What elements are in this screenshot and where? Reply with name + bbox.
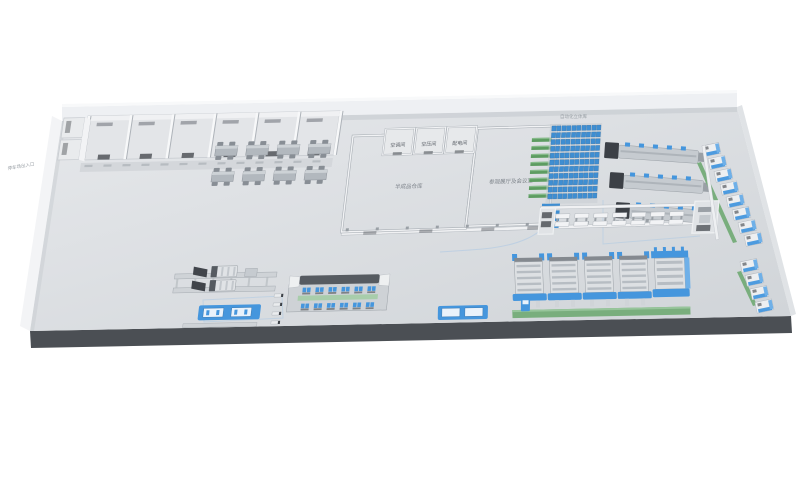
rack-cell — [564, 173, 569, 178]
big-machine — [616, 251, 652, 306]
equipment-unit — [541, 221, 552, 227]
column-dot — [646, 219, 649, 222]
column-dot — [436, 226, 439, 229]
rack-cell — [579, 173, 584, 178]
outside-left-label: 停车场出入口 — [7, 160, 35, 172]
machine-slat — [586, 263, 610, 266]
rack-cell — [566, 139, 571, 144]
bench-top — [650, 220, 664, 225]
rack-cell — [570, 160, 575, 165]
machine-leg — [641, 298, 645, 305]
hall-door — [363, 231, 376, 235]
desk-chair — [304, 180, 311, 184]
rack-cell — [588, 180, 593, 185]
rack-cell — [565, 153, 570, 158]
rack-cell — [561, 139, 566, 144]
machine-slat — [587, 269, 611, 272]
rack-cell — [561, 133, 566, 138]
rack-cell — [590, 146, 595, 151]
rack-cell — [550, 153, 555, 158]
rack-cell — [595, 152, 600, 157]
utility-room — [414, 127, 446, 154]
rack-cell — [584, 159, 589, 164]
utility-room-label-3: 配电间 — [452, 140, 468, 147]
rack-cell — [569, 173, 574, 178]
assembly-station — [340, 303, 344, 308]
station-mat — [520, 312, 531, 317]
assembly-station-base — [315, 292, 323, 294]
hook-body — [271, 321, 278, 324]
bench-top — [593, 221, 607, 226]
rack-cell — [591, 139, 596, 144]
rack-cell — [584, 173, 589, 178]
rack-cell — [571, 139, 576, 144]
rack-cell — [570, 146, 575, 151]
rack-cell — [594, 166, 599, 171]
rack-cell — [596, 139, 601, 144]
rack-cell — [564, 160, 569, 165]
rack-cell — [589, 166, 594, 171]
assembly-station — [328, 287, 332, 292]
rack-cell — [552, 194, 557, 199]
rack-cell — [581, 139, 586, 144]
assembly-station-base — [327, 308, 335, 310]
line-station-dot — [686, 176, 691, 180]
assembly-station-base — [354, 291, 362, 293]
desk-chair — [273, 181, 280, 185]
rack-cell — [584, 166, 589, 171]
corridor-tick — [236, 162, 244, 164]
rack-cell — [560, 160, 565, 165]
desk-chair — [291, 140, 298, 144]
rack-cell — [588, 186, 593, 191]
bench-top — [631, 220, 645, 225]
machine-slat — [517, 288, 541, 291]
rack-cell — [551, 133, 556, 138]
desk-chair — [260, 141, 267, 145]
corridor-tick — [255, 161, 263, 163]
rack-cell — [550, 160, 555, 165]
platform-tick — [244, 309, 248, 314]
bench-top — [669, 219, 683, 224]
rack-cell — [583, 186, 588, 191]
assembly-station — [305, 304, 309, 309]
line-station-dot — [667, 145, 672, 149]
rack-cell — [578, 193, 583, 198]
rack-cell — [564, 166, 569, 171]
machine-base — [583, 292, 617, 300]
hook-item — [271, 321, 280, 324]
hook-body — [274, 294, 281, 297]
rack-cell — [594, 173, 599, 178]
rack-cell — [574, 159, 579, 164]
corridor-tick — [160, 163, 168, 165]
desk-chair — [285, 180, 292, 184]
desk-chair — [211, 182, 218, 186]
rack-cell — [548, 194, 553, 199]
rack-cell — [568, 180, 573, 185]
rack-cell — [560, 153, 565, 158]
corridor-tick — [141, 164, 149, 166]
rack-cell — [558, 194, 563, 199]
rack-cell — [574, 173, 579, 178]
rack-cell — [587, 125, 592, 130]
room-sign — [180, 121, 197, 125]
machine-slat — [552, 288, 576, 291]
hook-item — [273, 303, 282, 306]
assembly-station — [359, 286, 363, 291]
column-dot — [526, 223, 529, 226]
rack-cell — [572, 193, 577, 198]
assembly-line — [286, 274, 390, 312]
rack-cell — [571, 132, 576, 137]
room-sign — [222, 120, 239, 124]
machine-frame — [651, 251, 688, 259]
rack-cell — [593, 179, 598, 184]
assembly-station — [370, 302, 374, 307]
desk-chair — [225, 168, 232, 172]
bench-top — [612, 221, 626, 226]
corner-room — [58, 140, 82, 160]
machine-leg — [606, 299, 610, 306]
hook-tip — [278, 321, 280, 324]
assembly-station — [353, 303, 357, 308]
desk-chair — [310, 140, 317, 144]
assembly-station — [346, 287, 350, 292]
line-head — [609, 172, 624, 189]
assembly-station — [366, 302, 370, 307]
machine-base — [653, 289, 690, 298]
rack-cell — [588, 193, 593, 198]
rack-cell — [567, 126, 572, 131]
machine-base — [548, 293, 582, 301]
room-door — [139, 154, 152, 159]
machine-leg — [625, 299, 629, 306]
column-dot — [376, 227, 379, 230]
assembly-station — [314, 303, 318, 308]
rack-cell — [566, 132, 571, 137]
utility-room-door — [393, 152, 402, 155]
rack-cell — [556, 133, 561, 138]
rack-cell — [583, 180, 588, 185]
big-machine — [581, 252, 617, 307]
platform-unit — [442, 308, 460, 317]
bench-top — [556, 214, 570, 219]
line-station-dot — [681, 146, 686, 150]
machine-leg — [571, 300, 575, 307]
desk-chair — [213, 168, 220, 172]
rack-cell — [589, 173, 594, 178]
assembly-station-base — [302, 293, 310, 295]
desk-chair — [229, 142, 236, 146]
room-sign — [138, 122, 155, 126]
room-door — [181, 153, 194, 158]
factory-3d-scene: 空调间空压间配电间半成品仓库参观展厅及会议室 停车场出入口 自动化立体库 — [0, 0, 800, 480]
desk-chair — [227, 156, 234, 160]
line-station-dot — [653, 144, 658, 148]
assembly-station — [331, 303, 335, 308]
rack-cell — [592, 125, 597, 130]
storage-area-label: 自动化立体库 — [560, 113, 587, 120]
line-head — [604, 142, 619, 159]
rack-cell — [575, 153, 580, 158]
bench-top — [555, 222, 569, 227]
room-sign — [306, 118, 323, 122]
machine-slat — [622, 274, 646, 277]
machine-slat — [622, 286, 646, 289]
rack-cell — [554, 167, 559, 172]
rack-cell — [568, 187, 573, 192]
desk-chair — [322, 140, 329, 144]
machine-slat — [587, 287, 611, 290]
rack-cell — [562, 194, 567, 199]
big-machine — [651, 247, 691, 298]
assembly-station — [344, 303, 348, 308]
hook-body — [273, 303, 280, 306]
rack-cell — [549, 174, 554, 179]
assembly-station-base — [328, 292, 336, 294]
rack-cell — [585, 146, 590, 151]
rack-cell — [581, 132, 586, 137]
column-dot — [346, 228, 349, 231]
machine-slat — [587, 281, 611, 284]
utility-room — [445, 126, 477, 153]
bench-top — [632, 212, 646, 217]
bench-top — [651, 212, 665, 217]
room-sign — [264, 119, 281, 123]
assembly-station — [357, 302, 361, 307]
assembly-station — [367, 286, 371, 291]
rack-cell — [553, 180, 558, 185]
machine-base — [618, 291, 652, 299]
desk-chair — [320, 154, 327, 158]
machine-slat — [552, 282, 576, 285]
assembly-station — [320, 287, 324, 292]
rack-cell — [563, 187, 568, 192]
rack-cell — [552, 126, 557, 131]
bench-top — [575, 213, 589, 218]
rack-cell — [576, 139, 581, 144]
assembly-station — [341, 287, 345, 292]
corridor-tick — [274, 161, 282, 163]
rack-cell — [592, 193, 597, 198]
desk-chair — [316, 180, 323, 184]
line-station-dot — [672, 175, 677, 179]
utility-room-door — [455, 150, 464, 153]
conveyor-box — [245, 268, 258, 276]
rack-cell — [575, 146, 580, 151]
platform-tick — [206, 310, 210, 315]
rack-cell — [586, 139, 591, 144]
rack-cell — [548, 180, 553, 185]
rack-cell — [591, 132, 596, 137]
platform-unit — [465, 308, 483, 317]
desk-chair — [242, 181, 249, 185]
rack-cell — [558, 180, 563, 185]
hook-item — [272, 312, 281, 315]
hook-tip — [279, 312, 281, 315]
rack-cell — [576, 132, 581, 137]
desk-chair — [254, 181, 261, 185]
assembly-station-base — [353, 307, 361, 309]
corridor-tick — [293, 161, 301, 163]
equipment-unit — [698, 207, 712, 212]
machine-leg — [590, 299, 594, 306]
rack-cell — [556, 139, 561, 144]
room-sign — [96, 122, 113, 126]
rack-cell — [565, 146, 570, 151]
machine-slat — [622, 268, 646, 271]
hook-tip — [281, 294, 283, 297]
rack-cell — [554, 173, 559, 178]
assembly-station — [333, 287, 337, 292]
desk-table-top — [216, 146, 238, 149]
corridor-tick — [103, 164, 111, 166]
line-station-dot — [630, 172, 635, 176]
desk-table-top — [212, 172, 234, 175]
machine-slat — [551, 264, 575, 267]
machine-slat — [517, 282, 541, 285]
machine-slat — [622, 280, 646, 283]
desk-chair — [279, 141, 286, 145]
utility-room — [383, 128, 415, 155]
column-dot — [406, 226, 409, 229]
machine-leg — [555, 300, 559, 307]
machine-slat — [656, 261, 682, 265]
desk-table-top — [274, 170, 296, 173]
assembly-station — [354, 287, 358, 292]
line-station-dot — [644, 173, 649, 177]
hall-door — [481, 227, 494, 231]
assembly-station-base — [366, 307, 374, 309]
platform-unit — [231, 307, 252, 316]
bench-top — [574, 221, 588, 226]
platform-tick — [234, 310, 238, 315]
rack-cell — [593, 186, 598, 191]
hall-door — [419, 229, 432, 233]
station-machine — [521, 298, 530, 311]
utility-room-label-1: 空调间 — [390, 141, 406, 148]
equipment-unit — [542, 212, 553, 218]
rack-cell — [580, 159, 585, 164]
desk-chair — [256, 167, 263, 171]
corridor-tick — [179, 163, 187, 165]
machine-slat — [657, 275, 683, 279]
machine-slat — [517, 270, 541, 273]
hook-tip — [280, 303, 282, 306]
rack-cell — [557, 126, 562, 131]
desk-table-top — [243, 171, 265, 174]
desk-table-top — [247, 145, 269, 148]
rack-cell — [560, 146, 565, 151]
rack-cell — [586, 132, 591, 137]
hook-item — [274, 294, 283, 297]
rack-cell — [562, 126, 567, 131]
desk-chair — [277, 155, 284, 159]
assembly-station-base — [367, 291, 375, 293]
desk-chair — [275, 167, 282, 171]
rack-cell — [578, 187, 583, 192]
machine-slat — [552, 276, 576, 279]
desk-chair — [308, 154, 315, 158]
assembly-station — [318, 303, 322, 308]
rack-cell — [549, 167, 554, 172]
desk-table-top — [278, 144, 300, 147]
assembly-canopy — [299, 274, 380, 285]
rack-cell — [574, 166, 579, 171]
rack-cell — [554, 160, 559, 165]
rack-cell — [582, 125, 587, 130]
rack-cell — [579, 166, 584, 171]
rack-cell — [563, 180, 568, 185]
rack-cell — [580, 146, 585, 151]
rack-cell — [568, 194, 573, 199]
corridor-tick — [312, 160, 320, 162]
machine-leg — [536, 301, 540, 308]
station-machine-top — [523, 300, 529, 304]
big-machine — [546, 253, 582, 308]
rack-cell — [573, 187, 578, 192]
equipment-unit — [699, 215, 711, 223]
line-station-dot — [625, 142, 630, 146]
rack-cell — [550, 146, 555, 151]
corridor-tick — [84, 165, 92, 167]
assembly-station — [327, 303, 331, 308]
desk-chair — [318, 166, 325, 170]
desk-chair — [258, 155, 265, 159]
bench-top — [613, 213, 627, 218]
assembly-station — [372, 286, 376, 291]
column-dot — [496, 224, 499, 227]
assembly-station-base — [340, 308, 348, 310]
rack-cell — [590, 152, 595, 157]
assembly-endcap — [379, 274, 390, 286]
machine-slat — [517, 276, 541, 279]
rack-cell — [577, 125, 582, 130]
assembly-station-base — [301, 309, 309, 311]
line-station-dot — [658, 174, 663, 178]
rack-cell — [570, 153, 575, 158]
rack-cell — [595, 145, 600, 150]
assembly-station — [315, 287, 319, 292]
rack-cell — [590, 159, 595, 164]
rack-cell — [548, 187, 553, 192]
rack-cell — [569, 166, 574, 171]
rack-cell — [555, 146, 560, 151]
corner-room — [61, 118, 85, 138]
rack-cell — [596, 132, 601, 137]
desk-chair — [289, 154, 296, 158]
desk-chair — [287, 166, 294, 170]
rack-cell — [585, 152, 590, 157]
machine-slat — [657, 268, 683, 272]
rack-cell — [559, 167, 564, 172]
rack-cell — [555, 153, 560, 158]
rack-cell — [551, 140, 556, 145]
corridor-tick — [198, 162, 206, 164]
top-office-rooms — [80, 111, 344, 172]
machine-slat — [552, 270, 576, 273]
desk-chair — [223, 182, 230, 186]
rack-cell — [558, 187, 563, 192]
factory-layout-render: 空调间空压间配电间半成品仓库参观展厅及会议室 停车场出入口 自动化立体库 — [0, 0, 800, 480]
desk-table-top — [305, 170, 327, 173]
rack-cell — [573, 180, 578, 185]
rack-cell — [553, 187, 558, 192]
rack-cell — [580, 153, 585, 158]
room-door — [97, 154, 110, 159]
rack-cell — [597, 125, 602, 130]
